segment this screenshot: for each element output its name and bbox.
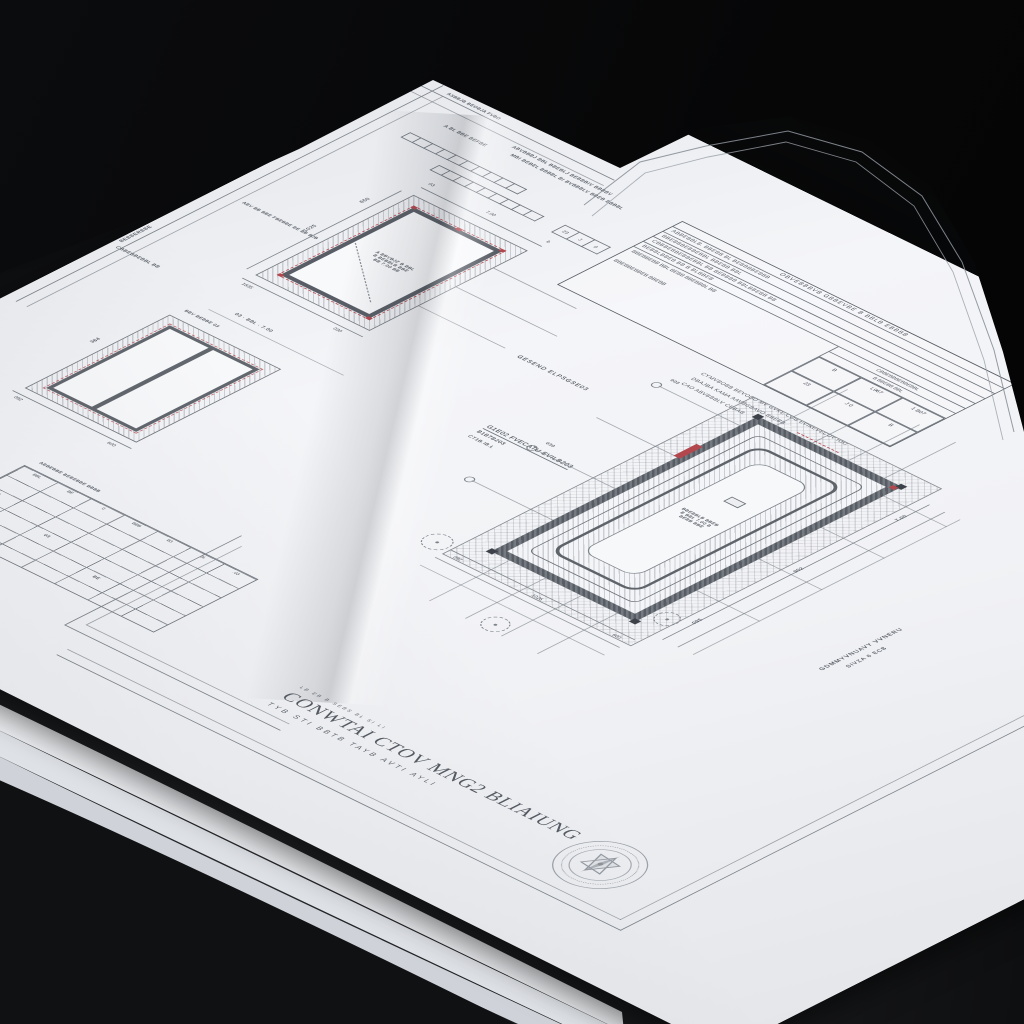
upper-plan-caption: ABV BB BBE FBEBBE BE BB BJB <box>241 201 320 240</box>
dim-value: 600 <box>105 441 118 447</box>
header-small-label: A BL BBE BEFBE <box>441 124 488 147</box>
header-cell-strip-values: 23J0 <box>551 225 611 255</box>
dim-value: 7.00 <box>483 210 497 217</box>
page-corner-label: ASBBJB BEOBJA FVBO <box>446 92 503 120</box>
drawing-title-main: CONWTAI CTOV MNG2 BLIAIUNG <box>275 690 587 843</box>
dim-value: 1025 <box>302 224 319 233</box>
table-cell-value: BE <box>91 575 102 580</box>
table-header-cell: B3 <box>151 532 189 550</box>
margin-line <box>85 624 289 724</box>
dim-value: 03 <box>426 182 436 187</box>
dim-value: b <box>544 240 552 244</box>
margin-text: SIVZA 6 ECB <box>845 646 890 668</box>
margin-line <box>620 644 1024 920</box>
drawing-title-small: LB EB B SEBS BL SI LI <box>297 686 595 832</box>
table-header-cell: BBB <box>118 515 156 533</box>
drawing-title: LB EB B SEBS BL SI LI CONWTAI CTOV MNG2 … <box>264 686 595 848</box>
margin-line <box>56 654 621 930</box>
extension-line <box>418 306 505 349</box>
dim-value: 030 <box>331 327 344 333</box>
legend-label: GESEND ELPSGSE03 <box>515 355 590 392</box>
margin-line <box>64 625 281 731</box>
grid-mark: 030 <box>544 442 557 448</box>
margin-text: GDMMYVNUAVY VVNERU <box>818 627 905 671</box>
photo-scene: ASBBJB BEOBJA FVBO A BL BBE BEFBE ABVBBB… <box>0 0 1024 1024</box>
schedule-table: BBLBE0BBBB3BL.03 BB 03 BE <box>0 465 259 633</box>
table-header-cell: BL <box>184 548 222 566</box>
blueprint-sheet-wrap: ASBBJB BEOBJA FVBO A BL BBE BEFBE ABVBBB… <box>0 0 1024 1024</box>
table-header-cell: .03 <box>217 564 255 582</box>
margin-line <box>420 85 614 180</box>
dim-value: 384 <box>89 337 103 344</box>
dim-value: 650 <box>358 197 372 204</box>
dim-value: 7.00 <box>894 514 910 522</box>
table-header-row: BBLBE0BBBB3BL.03 <box>18 467 255 583</box>
header-text-line: MBI BEBEL BBBBL BI BVBBBLV BBEB BBBBL <box>508 153 625 210</box>
extension-line <box>456 287 558 337</box>
dim-value: 902 <box>792 567 806 574</box>
dim-value: 092 <box>11 396 24 402</box>
table-cell-value: BB <box>0 491 3 496</box>
table-cell-value: 03 <box>42 533 52 538</box>
drawing-title-sub: TYB STI BBTB TAYB AVTI AYLI <box>264 701 565 848</box>
margin-line <box>67 649 621 920</box>
table-header-cell: 0 <box>85 499 123 517</box>
blueprint-sheet: ASBBJB BEOBJA FVBO A BL BBE BEFBE ABVBBB… <box>0 44 1024 1024</box>
